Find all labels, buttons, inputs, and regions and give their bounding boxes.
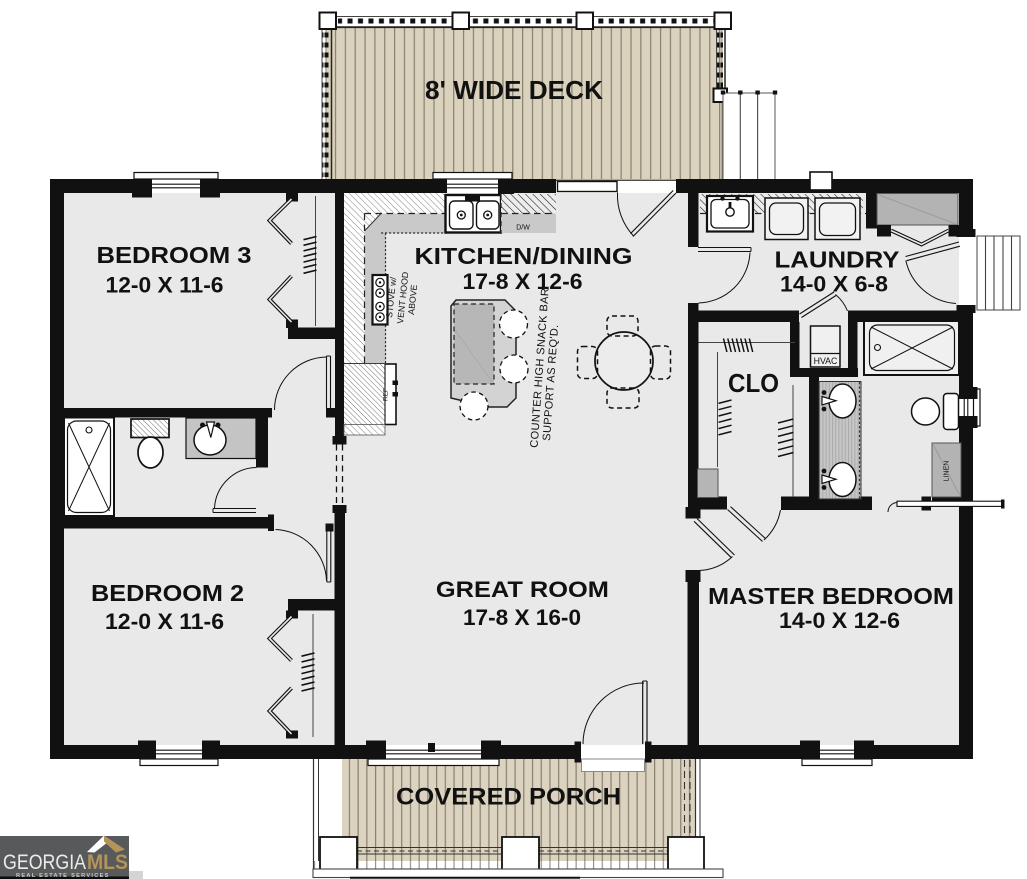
svg-text:KITCHEN/DINING: KITCHEN/DINING: [415, 243, 633, 269]
svg-text:GREAT ROOM: GREAT ROOM: [436, 577, 609, 602]
svg-text:12-0 X 11-6: 12-0 X 11-6: [105, 609, 224, 634]
svg-text:MASTER BEDROOM: MASTER BEDROOM: [708, 583, 954, 609]
svg-text:BEDROOM 2: BEDROOM 2: [91, 580, 244, 606]
svg-text:COVERED PORCH: COVERED PORCH: [396, 784, 621, 811]
svg-text:LAUNDRY: LAUNDRY: [775, 247, 900, 273]
svg-text:17-8 X 12-6: 17-8 X 12-6: [463, 269, 583, 294]
svg-text:14-0 X 6-8: 14-0 X 6-8: [780, 272, 888, 297]
svg-text:HVAC: HVAC: [814, 356, 838, 366]
svg-text:REF: REF: [383, 388, 390, 401]
svg-text:GEORGIA: GEORGIA: [3, 850, 87, 874]
svg-text:12-0 X 11-6: 12-0 X 11-6: [106, 273, 224, 298]
svg-text:8' WIDE DECK: 8' WIDE DECK: [425, 77, 604, 105]
svg-text:REAL ESTATE SERVICES: REAL ESTATE SERVICES: [16, 873, 110, 879]
svg-text:D/W: D/W: [516, 225, 530, 232]
svg-text:MLS: MLS: [87, 850, 128, 874]
svg-text:14-0 X 12-6: 14-0 X 12-6: [779, 608, 900, 633]
svg-text:LINEN: LINEN: [944, 461, 951, 482]
svg-text:CLO: CLO: [728, 368, 779, 398]
svg-text:17-8 X 16-0: 17-8 X 16-0: [463, 605, 581, 630]
svg-text:BEDROOM 3: BEDROOM 3: [97, 242, 252, 268]
